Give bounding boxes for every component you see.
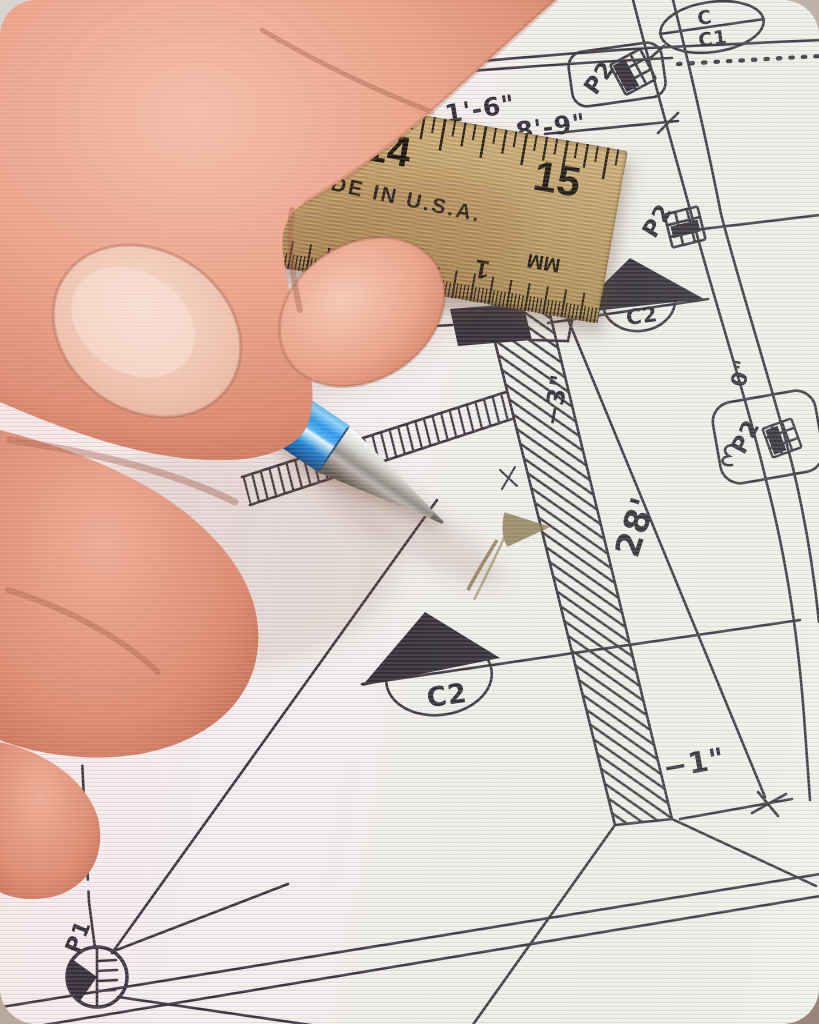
dashed-property-line: [72, 556, 89, 902]
photo-frame: 1'-6" 8'-9" C C1 P2 P2 J C2 0" P2 −3" K …: [0, 0, 819, 1024]
callout-c-c1-bottom-label: C1: [697, 26, 729, 52]
callout-c-c1-top-label: C: [696, 6, 714, 30]
ruler-made-in-usa-label: MADE IN U.S.A.: [292, 165, 484, 228]
callout-k-top-label: K: [413, 642, 441, 679]
ruler-number-15: 15: [530, 152, 584, 207]
callout-j-bottom-label: C2: [624, 302, 659, 330]
dotted-line: [678, 56, 819, 64]
callout-k-bottom-label: C2: [425, 678, 470, 714]
road-edge-right: [672, 0, 819, 622]
hatched-wall-band: [488, 306, 672, 825]
ruler-number-14: 14: [360, 122, 414, 177]
road-edge-left: [632, 0, 810, 800]
ruler-mm-label: MM: [525, 248, 562, 276]
pencil-arrow-mark: [468, 513, 549, 600]
